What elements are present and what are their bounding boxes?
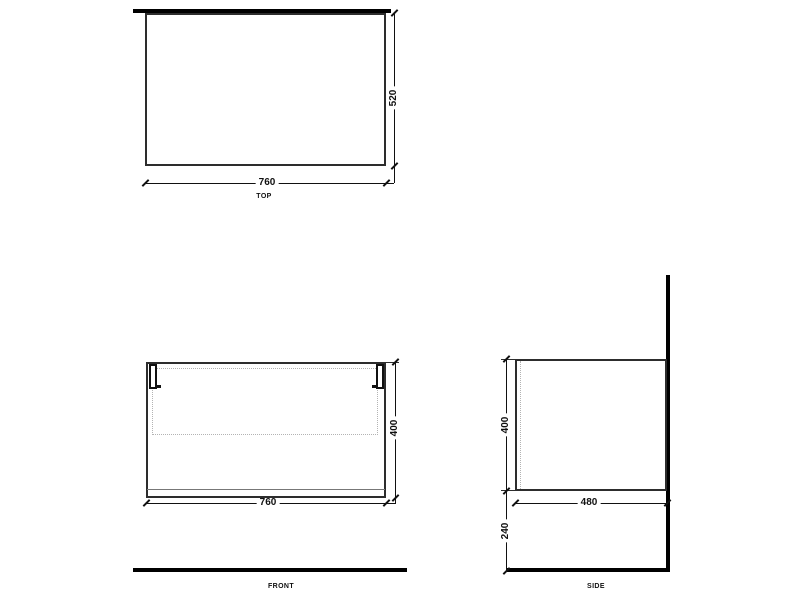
top-width-dimension-label: 760 xyxy=(256,178,279,188)
front-height-dimension-label: 400 xyxy=(390,417,400,440)
left-handle-foot xyxy=(156,385,161,388)
side-view-label: SIDE xyxy=(587,583,605,590)
front-view-label: FRONT xyxy=(268,583,294,590)
technical-drawing-canvas: 760 520 TOP 400 760 FRONT xyxy=(0,0,800,600)
side-height-dimension-label: 400 xyxy=(501,414,511,437)
side-view-outline xyxy=(515,359,667,491)
front-door-dashed-outline xyxy=(152,368,378,435)
side-door-dashed-line xyxy=(520,361,521,489)
side-floorgap-dimension-label: 240 xyxy=(501,520,511,543)
top-view-outline xyxy=(145,13,386,166)
front-width-dimension-label: 760 xyxy=(257,498,280,508)
side-depth-dimension-label: 480 xyxy=(578,498,601,508)
top-view-label: TOP xyxy=(256,193,271,200)
right-door-handle xyxy=(376,364,384,389)
top-depth-dimension-label: 520 xyxy=(389,87,399,110)
side-floor-line xyxy=(507,568,669,572)
front-floor-line xyxy=(133,568,407,572)
front-bottom-panel-line xyxy=(147,489,385,490)
right-handle-foot xyxy=(372,385,377,388)
